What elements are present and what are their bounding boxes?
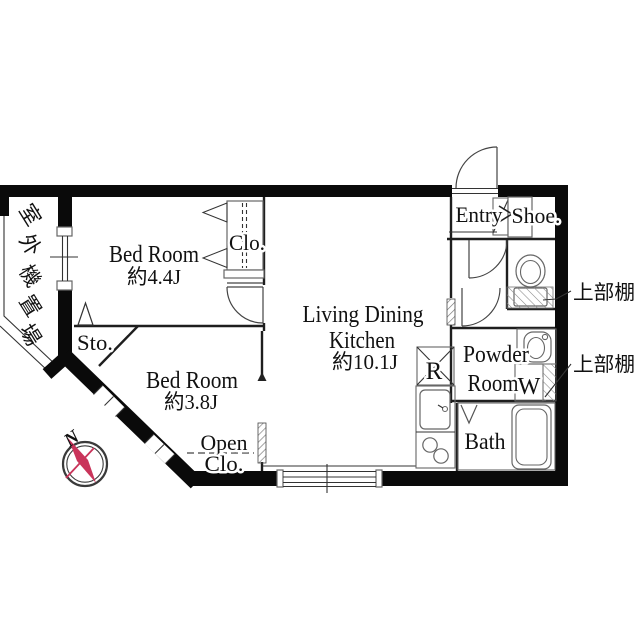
open-closet-label-line2: Clo. <box>205 451 244 476</box>
svg-text:置: 置 <box>14 291 45 322</box>
refrigerator-label: R <box>426 358 443 385</box>
powder-room-door <box>447 288 500 326</box>
bedroom2-area: 約3.8J <box>164 390 218 414</box>
entry-label: Entry <box>456 202 503 227</box>
svg-text:機: 機 <box>14 261 45 292</box>
upper-shelf-laundry-label: 上部棚 <box>573 353 635 376</box>
washing-machine-label: W <box>518 374 541 400</box>
entry-door <box>452 147 498 194</box>
toilet-door <box>469 240 507 278</box>
floor-plan: N Bed Room 約4.4J Bed Room 約3.8J Living D… <box>0 0 640 640</box>
storage-door <box>78 303 93 325</box>
bedroom2-sliding-door <box>258 372 267 463</box>
closet-label: Clo. <box>229 230 265 255</box>
outdoor-unit-label: 室 外 機 置 場 <box>14 200 45 351</box>
ldk-area: 約10.1J <box>332 350 398 374</box>
ldk-label-line1: Living Dining <box>303 302 424 328</box>
bath-label: Bath <box>465 429 506 454</box>
svg-text:場: 場 <box>14 320 45 351</box>
powder-room-label-line1: Powder <box>463 342 529 368</box>
shoe-cabinet-label: Shoe. <box>512 203 561 228</box>
bedroom1-area: 約4.4J <box>127 265 181 289</box>
powder-room-label-line2: Room <box>468 371 519 397</box>
compass-north-label: N <box>59 426 84 452</box>
upper-shelf-toilet-label: 上部棚 <box>573 281 635 304</box>
bedroom1-door <box>227 283 263 323</box>
svg-text:室: 室 <box>14 200 45 231</box>
bedroom-window <box>50 227 78 290</box>
svg-text:外: 外 <box>14 230 45 261</box>
compass: N <box>59 426 107 486</box>
floor-plan-canvas: N Bed Room 約4.4J Bed Room 約3.8J Living D… <box>0 0 640 640</box>
storage-label: Sto. <box>77 330 113 355</box>
